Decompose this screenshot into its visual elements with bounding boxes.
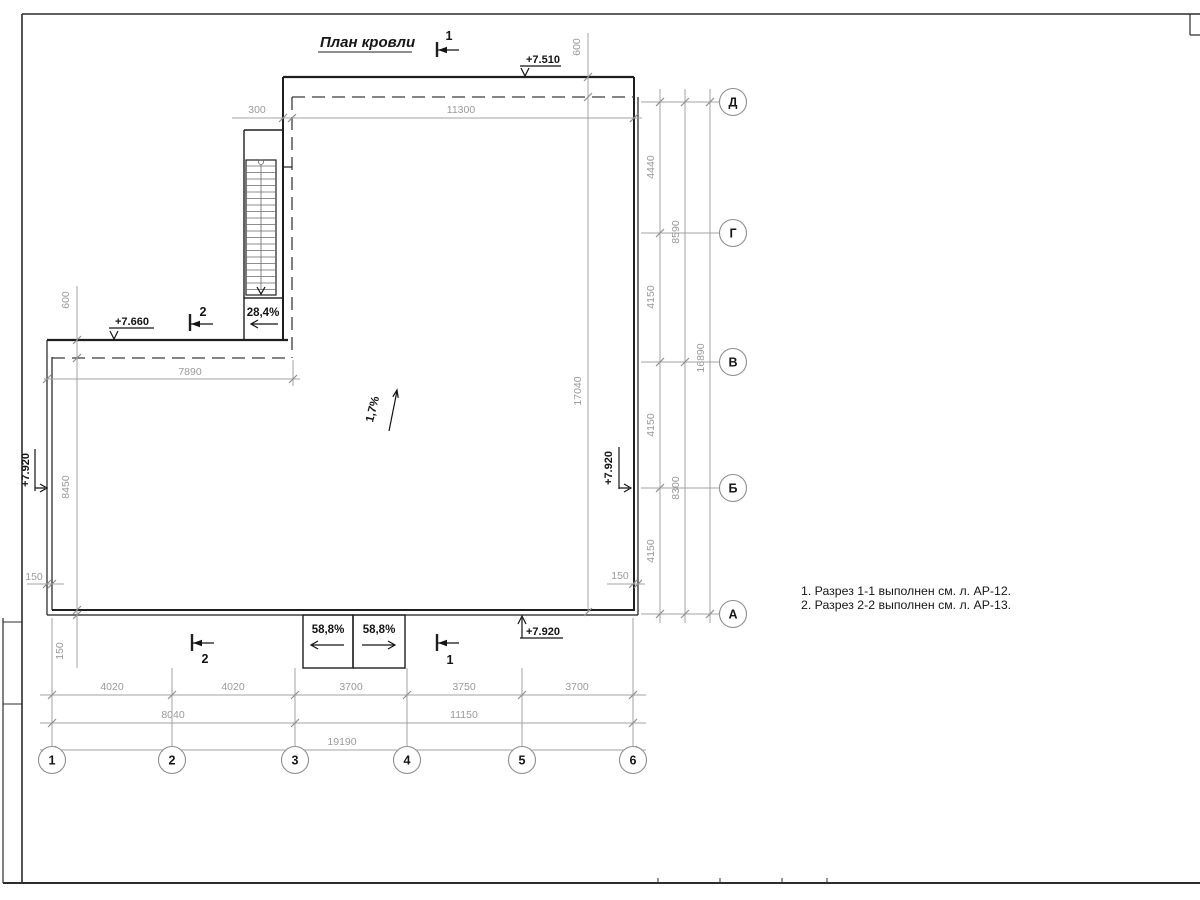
dim-19190: 19190 bbox=[327, 736, 356, 748]
elevation-right: +7.920 bbox=[603, 447, 631, 492]
section-bottom-right-label: 1 bbox=[447, 653, 454, 667]
elevation-left: +7.920 bbox=[20, 449, 47, 492]
dim-8300: 8300 bbox=[670, 476, 682, 500]
roof-slope-arrow bbox=[389, 390, 398, 431]
grid-bubbles-bottom: 1 2 3 4 5 6 bbox=[39, 747, 647, 774]
dim-300: 300 bbox=[248, 104, 266, 116]
elevation-left-label: +7.920 bbox=[20, 453, 32, 487]
stair-slope-arrow-left bbox=[251, 320, 278, 328]
dim-vertical-center: 600 17040 bbox=[571, 33, 592, 616]
elevation-wing-label: +7.660 bbox=[115, 316, 149, 328]
axis-number-5: 5 bbox=[519, 754, 526, 768]
elevation-right-label: +7.920 bbox=[603, 451, 615, 485]
section-mark-bottom-1: 1 bbox=[437, 634, 459, 667]
drawing-sheet: План кровли 28,4% 1,7% bbox=[0, 0, 1200, 900]
title-block: План кровли bbox=[318, 34, 415, 52]
notes: 1. Разрез 1-1 выполнен см. л. АР-12. 2. … bbox=[801, 584, 1011, 612]
roof-slope: 1,7% bbox=[364, 390, 398, 431]
axis-letter-G: Г bbox=[729, 227, 736, 241]
ramp-boxes: 58,8% 58,8% bbox=[303, 615, 405, 668]
elevation-bottom: +7.920 bbox=[518, 616, 563, 638]
section-top-label: 1 bbox=[446, 29, 453, 43]
note-line-2: 2. Разрез 2-2 выполнен см. л. АР-13. bbox=[801, 598, 1011, 612]
section-mark-bottom-2: 2 bbox=[192, 634, 214, 666]
ramp-left-arrow bbox=[311, 641, 344, 649]
dim-right-150: 150 bbox=[607, 570, 645, 588]
axis-number-1: 1 bbox=[49, 754, 56, 768]
ramp-right-arrow bbox=[362, 641, 395, 649]
axis-number-6: 6 bbox=[630, 754, 637, 768]
dim-4440: 4440 bbox=[645, 155, 657, 179]
axis-number-4: 4 bbox=[404, 754, 411, 768]
dim-4020-a: 4020 bbox=[100, 681, 124, 693]
dim-150-left-h: 150 bbox=[25, 571, 43, 583]
axis-letter-D: Д bbox=[729, 96, 738, 110]
dim-4150-c: 4150 bbox=[645, 539, 657, 563]
roof-plan-svg: План кровли 28,4% 1,7% bbox=[0, 0, 1200, 900]
ramp-right-label: 58,8% bbox=[363, 624, 396, 636]
dim-4150-b: 4150 bbox=[645, 413, 657, 437]
section-mark-wing-2: 2 bbox=[190, 305, 213, 331]
dim-150-left-v: 150 bbox=[54, 642, 66, 660]
ramp-left-label: 58,8% bbox=[312, 624, 345, 636]
dim-right-columns: 4440 4150 4150 4150 8590 8300 16890 bbox=[641, 89, 719, 623]
dim-600-top: 600 bbox=[571, 38, 583, 56]
grid-bubbles-right: Д Г В Б А bbox=[720, 89, 747, 628]
dim-8590: 8590 bbox=[670, 220, 682, 244]
elevation-top-label: +7.510 bbox=[526, 54, 560, 66]
axis-letter-V: В bbox=[728, 356, 737, 370]
ramp-box-right bbox=[353, 615, 405, 668]
axis-number-2: 2 bbox=[169, 754, 176, 768]
dim-4020-b: 4020 bbox=[221, 681, 245, 693]
dim-11150: 11150 bbox=[450, 709, 478, 721]
stair-slope-box: 28,4% bbox=[244, 298, 283, 340]
dim-16890: 16890 bbox=[695, 343, 707, 372]
elevation-wing: +7.660 bbox=[109, 316, 154, 339]
dim-17040: 17040 bbox=[572, 376, 584, 405]
elevation-top-arrow bbox=[521, 68, 529, 76]
dim-8450: 8450 bbox=[60, 475, 72, 499]
roof-outline bbox=[47, 77, 638, 615]
section-bottom-left-label: 2 bbox=[202, 652, 209, 666]
page-title: План кровли bbox=[320, 34, 415, 51]
stair-well bbox=[244, 130, 292, 298]
roof-slope-label: 1,7% bbox=[364, 395, 382, 423]
dim-7890: 7890 bbox=[178, 366, 202, 378]
dim-150-right: 150 bbox=[611, 570, 629, 582]
section-mark-top-1: 1 bbox=[437, 29, 459, 57]
dim-4150-a: 4150 bbox=[645, 285, 657, 309]
axis-letter-A: А bbox=[728, 608, 737, 622]
dim-11300: 11300 bbox=[447, 104, 476, 116]
dim-8040: 8040 bbox=[161, 709, 185, 721]
ramp-box-left bbox=[303, 615, 353, 668]
note-line-1: 1. Разрез 1-1 выполнен см. л. АР-12. bbox=[801, 584, 1011, 598]
section-wing-label: 2 bbox=[200, 305, 207, 319]
dim-3700-a: 3700 bbox=[339, 681, 363, 693]
elevation-bottom-label: +7.920 bbox=[526, 626, 560, 638]
dim-3700-b: 3700 bbox=[565, 681, 589, 693]
elevation-wing-arrow bbox=[110, 331, 118, 339]
stair-slope-label: 28,4% bbox=[247, 307, 280, 319]
axis-number-3: 3 bbox=[292, 754, 299, 768]
dim-3750: 3750 bbox=[452, 681, 476, 693]
dim-600-wing: 600 bbox=[60, 291, 72, 309]
axis-letter-B: Б bbox=[729, 482, 738, 496]
dim-top-row: 300 11300 bbox=[232, 104, 642, 122]
elevation-top: +7.510 bbox=[520, 54, 561, 76]
